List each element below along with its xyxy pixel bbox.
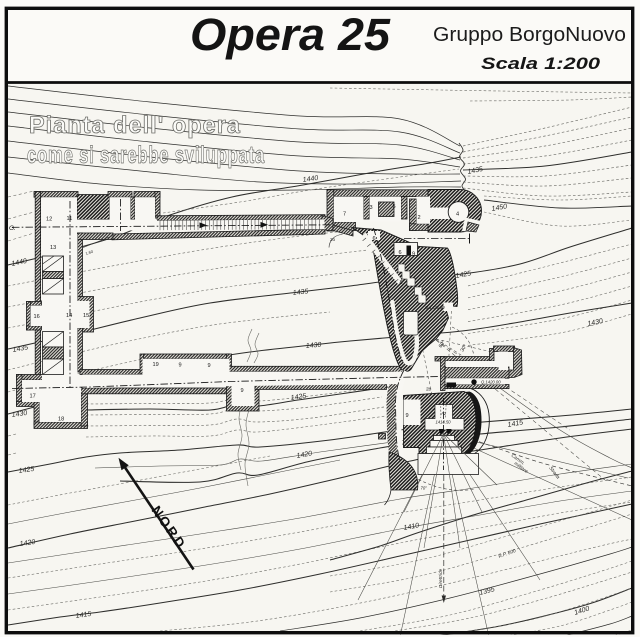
svg-text:2: 2 <box>418 215 421 221</box>
svg-text:4: 4 <box>456 212 459 218</box>
svg-text:9: 9 <box>412 252 415 258</box>
svg-text:13: 13 <box>50 245 56 251</box>
svg-text:6: 6 <box>373 236 376 242</box>
svg-text:9: 9 <box>241 388 244 394</box>
svg-text:70°: 70° <box>421 486 428 491</box>
svg-text:9: 9 <box>406 413 409 419</box>
svg-text:15: 15 <box>83 313 89 319</box>
svg-text:14: 14 <box>66 313 72 319</box>
svg-text:16: 16 <box>34 314 40 320</box>
svg-text:8: 8 <box>400 280 403 286</box>
svg-text:3: 3 <box>370 205 373 211</box>
svg-text:9: 9 <box>179 363 182 369</box>
svg-text:17: 17 <box>30 394 36 400</box>
svg-text:6: 6 <box>399 250 402 256</box>
svg-text:1430: 1430 <box>306 342 322 350</box>
svg-text:Direttrice: Direttrice <box>438 568 444 588</box>
svg-text:Scala 1:200: Scala 1:200 <box>481 54 601 73</box>
svg-text:Gruppo BorgoNuovo: Gruppo BorgoNuovo <box>433 24 626 46</box>
svg-text:7: 7 <box>343 212 346 218</box>
svg-text:Q.1420.00: Q.1420.00 <box>481 380 501 385</box>
svg-text:19: 19 <box>153 362 159 368</box>
svg-text:1418.50: 1418.50 <box>436 420 452 425</box>
svg-text:18: 18 <box>58 417 64 423</box>
svg-text:11: 11 <box>67 216 73 222</box>
svg-text:12: 12 <box>46 217 52 223</box>
svg-text:2o: 2o <box>330 237 336 242</box>
svg-text:2b: 2b <box>426 387 432 392</box>
svg-text:Opera 25: Opera 25 <box>190 9 391 60</box>
svg-text:come si sarebbe sviluppata: come si sarebbe sviluppata <box>27 142 265 169</box>
svg-text:Q.1424.50: Q.1424.50 <box>425 305 445 310</box>
svg-text:A2: A2 <box>440 411 447 416</box>
svg-text:Pianta dell' opera: Pianta dell' opera <box>29 112 241 139</box>
svg-text:G.: G. <box>9 225 16 232</box>
svg-text:5: 5 <box>393 204 396 210</box>
svg-text:9: 9 <box>208 363 211 369</box>
